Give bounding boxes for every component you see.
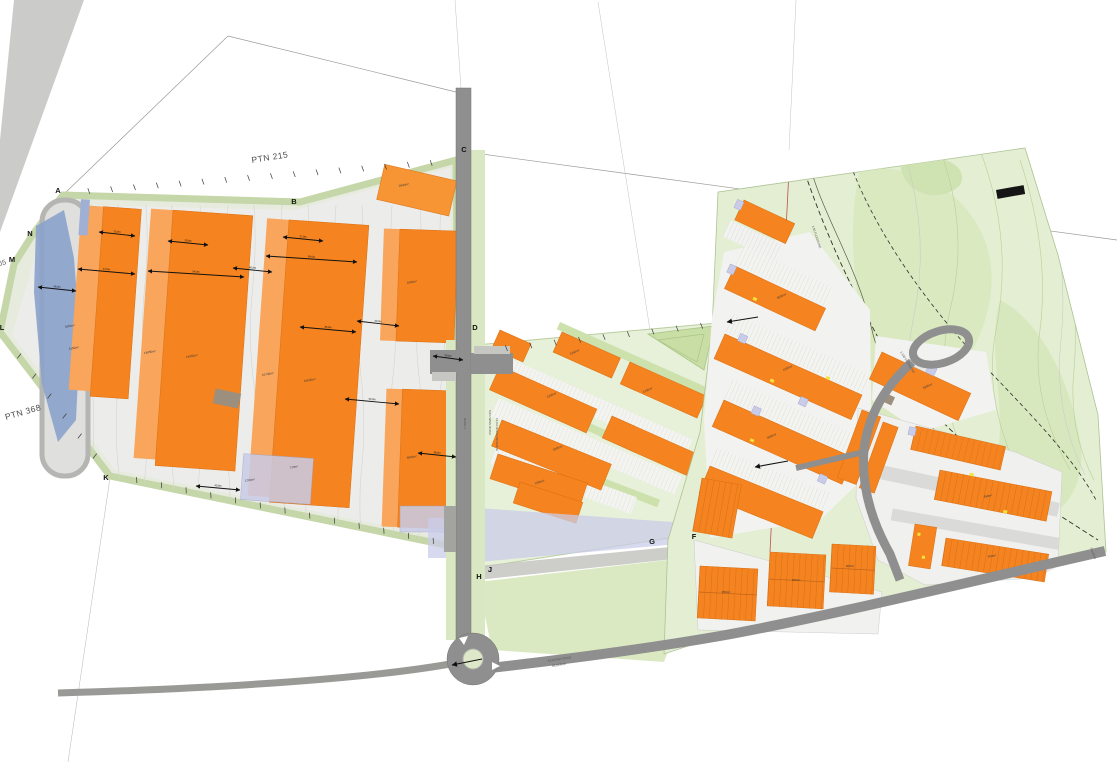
boundary-tick [225, 177, 227, 183]
southwest-road [58, 664, 450, 693]
label-road-1: ROAD 1 [463, 418, 467, 430]
boundary-tick [270, 173, 272, 179]
main-road [456, 88, 471, 650]
boundary-tick [293, 171, 295, 177]
beacon-label: L [0, 323, 5, 332]
boundary-tick [133, 185, 135, 191]
dimension-label: 27,0m [299, 234, 307, 239]
label-existing-road-2: RESERVE [552, 662, 567, 668]
label-road-reserve: 16,0m ROAD RESERVE [495, 418, 499, 451]
boundary-tick [339, 168, 341, 174]
dimension-label: 40,0m [214, 483, 222, 488]
strip-4-upper [380, 229, 458, 344]
beacon-label: K [103, 473, 109, 482]
building [396, 229, 458, 343]
beacon-label: G [649, 537, 655, 546]
dimension-label: 25,0m [113, 229, 121, 234]
label-ptn-215: PTN 215 [251, 149, 289, 165]
beacon-label: J [488, 565, 492, 574]
boundary-tick [202, 179, 204, 185]
beacon-label: B [291, 197, 297, 206]
label-road-width: 8,0m WIDE ROAD [488, 410, 492, 436]
boundary-tick [156, 183, 158, 189]
boundary-tick [248, 175, 250, 181]
area-label: 350m² [792, 578, 801, 582]
dimension-label: 35,0m [324, 325, 332, 330]
boundary-tick [111, 186, 113, 192]
left-precinct [0, 160, 460, 553]
beacon-label: N [27, 229, 32, 238]
dimension-label: 54,0m [308, 254, 315, 258]
area-label: 350m² [722, 590, 731, 594]
boundary-tick [179, 181, 181, 187]
area-label: 300m² [846, 564, 855, 568]
dimension-label: 40,0m [249, 265, 257, 270]
beacon-label: F [692, 532, 697, 541]
boundary-tick [316, 169, 318, 175]
label-ptn-368: PTN 368 [4, 402, 42, 422]
boundary-tick [362, 166, 364, 172]
beacon-label: M [9, 255, 15, 264]
dimension-label: 36,0m [53, 284, 61, 289]
dimension-label: 29,0m [184, 238, 192, 243]
beacon-label: A [55, 186, 61, 195]
dimension-label: 44,0m [368, 397, 376, 402]
label-ptn-65: 65 [0, 259, 7, 268]
dimension-label: 54,0m [192, 269, 199, 273]
beacon-label: C [461, 145, 467, 154]
beacon-label: D [472, 323, 478, 332]
plan-svg: PTN 215 PTN 368 65 ROAD 1 8,0m WIDE ROAD… [0, 0, 1117, 762]
boundary-tick [407, 162, 409, 168]
dimension-label: 38,0m [433, 450, 441, 455]
strip-2 [133, 209, 253, 471]
site-plan-stage: PTN 215 PTN 368 65 ROAD 1 8,0m WIDE ROAD… [0, 0, 1117, 762]
beacon-label: H [476, 572, 481, 581]
building-units [829, 544, 875, 594]
dimension-label: 41,0m [103, 267, 111, 272]
